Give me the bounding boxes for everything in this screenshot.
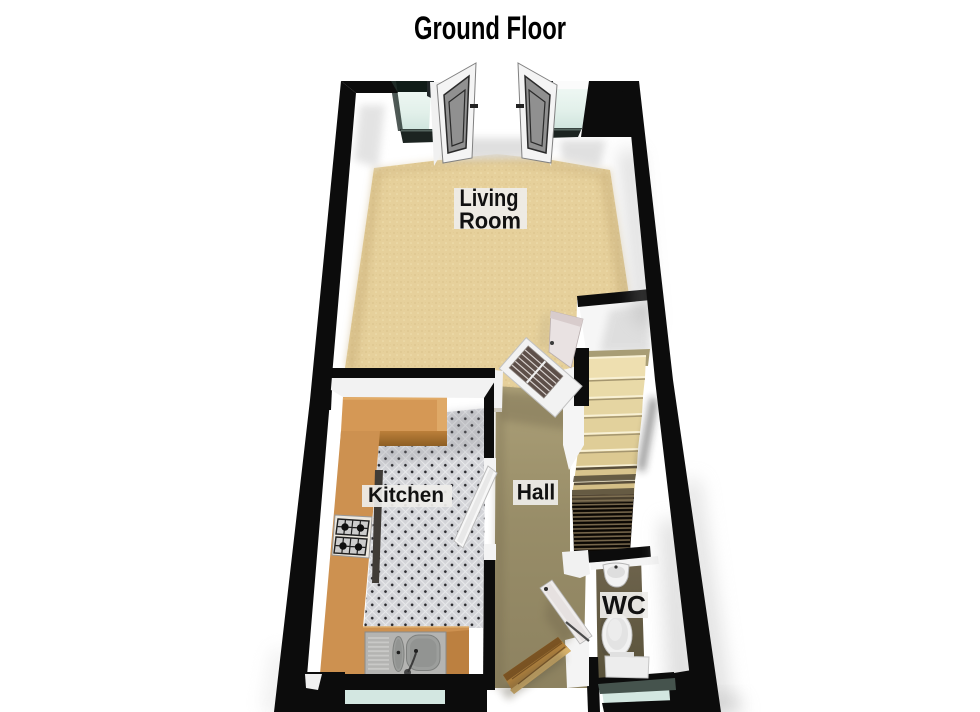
svg-text:Room: Room: [459, 208, 521, 234]
svg-text:Ground Floor: Ground Floor: [414, 10, 566, 46]
svg-text:Kitchen: Kitchen: [368, 484, 444, 507]
svg-text:Hall: Hall: [517, 480, 556, 505]
svg-text:WC: WC: [602, 590, 646, 620]
